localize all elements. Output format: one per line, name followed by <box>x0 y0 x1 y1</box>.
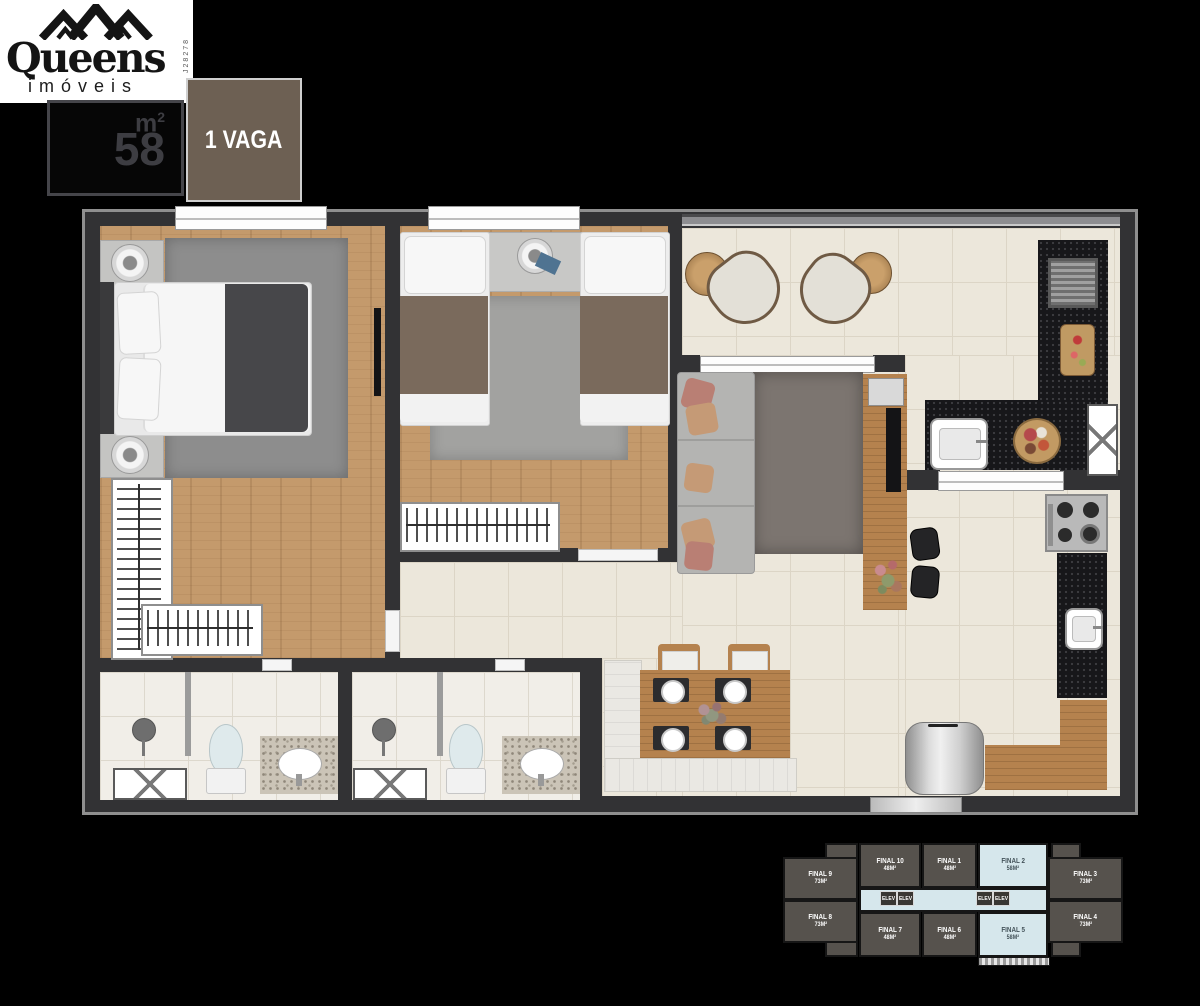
keyplan-unit: FINAL 4 73M² <box>1048 900 1123 943</box>
keyplan-unit: FINAL 7 48M² <box>859 912 921 957</box>
keyplan-unit: FINAL 9 73M² <box>783 857 858 900</box>
plant-icon <box>869 552 907 604</box>
toilet-tank <box>446 768 486 794</box>
pillow <box>584 236 666 294</box>
bed-headboard <box>100 282 114 434</box>
wall <box>338 672 352 800</box>
entry-door <box>870 797 962 813</box>
shower-arm <box>382 740 385 756</box>
elevator-label: ELEV <box>976 891 993 906</box>
elevator-label: ELEV <box>993 891 1010 906</box>
burner-icon <box>1058 528 1072 542</box>
building-outline <box>1051 941 1081 957</box>
unit-label: FINAL 7 <box>878 927 902 935</box>
vanity-counter <box>502 736 580 794</box>
master-window <box>175 206 327 230</box>
faucet-icon <box>538 774 544 786</box>
unit-label: FINAL 4 <box>1074 914 1098 922</box>
bed-sheet <box>580 394 668 422</box>
plate-icon <box>723 728 747 752</box>
unit-label: FINAL 10 <box>876 858 903 866</box>
parking-label: 1 VAGA <box>205 126 283 155</box>
pillow <box>116 357 161 421</box>
brand-subtitle: imóveis <box>28 76 138 97</box>
unit-label: FINAL 8 <box>809 914 833 922</box>
unit-area: 73M² <box>1079 922 1091 929</box>
floor-plan <box>82 209 1138 815</box>
bed-blanket <box>580 296 668 394</box>
toilet-icon <box>209 724 243 774</box>
centerpiece-icon <box>692 700 732 728</box>
balcony-railing <box>682 214 1120 226</box>
balcony-sliding-door <box>700 356 875 373</box>
floorplan-brochure: Queens imóveis J28278 m2 58 1 VAGA <box>0 0 1200 1006</box>
stove <box>1045 494 1108 552</box>
lamp-icon <box>111 244 149 282</box>
plate-icon <box>661 728 685 752</box>
bedroom2-window <box>428 206 580 230</box>
toilet-tank <box>206 768 246 794</box>
wall <box>905 470 940 490</box>
bed-sheet <box>400 394 488 422</box>
sofa-pillow <box>683 462 715 494</box>
stove-knobs <box>1048 504 1053 546</box>
kitchen-cabinet <box>985 745 1060 790</box>
shower-head-icon <box>132 718 156 742</box>
balcony-sink <box>930 418 988 470</box>
shower-tray <box>113 768 187 800</box>
shower-partition <box>185 672 191 756</box>
bed-throw <box>225 284 308 432</box>
shower-tray <box>353 768 427 800</box>
stool <box>910 565 941 599</box>
elevator-label: ELEV <box>897 891 914 906</box>
unit-area: 73M² <box>1079 879 1091 886</box>
area-badge: m2 58 <box>47 100 184 196</box>
duct-shaft <box>1087 404 1118 476</box>
parking-badge: 1 VAGA <box>186 78 302 202</box>
unit-label: FINAL 3 <box>1074 871 1098 879</box>
pillow <box>116 291 161 355</box>
grill-icon <box>1048 258 1098 308</box>
master-closet-leg <box>141 604 263 656</box>
sofa-seam <box>678 505 754 507</box>
shower-head-icon <box>372 718 396 742</box>
building-outline <box>825 941 858 957</box>
wall <box>580 658 602 800</box>
unit-label: FINAL 2 <box>1001 858 1025 866</box>
keyplan-unit: FINAL 3 73M² <box>1048 857 1123 900</box>
keyplan-unit: FINAL 1 48M² <box>922 843 977 888</box>
kitchen-pass-window <box>938 471 1064 491</box>
unit-area: 58M² <box>1007 866 1019 873</box>
sink-basin <box>1072 616 1096 642</box>
sofa-pillow <box>685 402 720 437</box>
burner-icon <box>1083 502 1099 518</box>
shower-partition <box>437 672 443 756</box>
toilet-icon <box>449 724 483 774</box>
bathroom2-door <box>495 659 525 671</box>
pillow <box>404 236 486 294</box>
bathroom1-door <box>262 659 292 671</box>
wall <box>385 212 400 658</box>
brand-registration: J28278 <box>183 38 190 73</box>
bedroom2-wardrobe <box>400 502 560 552</box>
unit-area: 48M² <box>943 935 955 942</box>
kitchen-cabinet <box>1060 700 1107 790</box>
plate-icon <box>661 680 685 704</box>
bedroom2-door <box>578 549 658 561</box>
faucet-icon <box>976 440 988 443</box>
area-value: 58 <box>50 126 165 172</box>
closet-rod <box>138 484 140 650</box>
kitchen-sink <box>1065 608 1103 650</box>
stool <box>909 526 941 562</box>
unit-area: 73M² <box>814 879 826 886</box>
unit-area: 48M² <box>884 866 896 873</box>
dining-bench <box>604 758 797 792</box>
unit-area: 58M² <box>1007 935 1019 942</box>
faucet-icon <box>296 774 302 786</box>
sink-basin <box>939 428 981 460</box>
food-platter <box>1013 418 1061 464</box>
unit-area: 48M² <box>884 935 896 942</box>
unit-area: 73M² <box>814 922 826 929</box>
brand-name: Queens <box>6 34 186 82</box>
master-door <box>385 610 400 652</box>
sofa-pillow <box>684 541 715 572</box>
cutting-board <box>1060 324 1095 376</box>
keyplan-unit: FINAL 6 48M² <box>922 912 977 957</box>
closet-rod <box>147 627 253 629</box>
vanity-counter <box>260 736 338 794</box>
refrigerator <box>905 722 984 795</box>
decor-tray <box>868 378 904 406</box>
keyplan-unit-highlighted: FINAL 2 58M² <box>978 843 1048 888</box>
tv-icon <box>886 408 901 492</box>
unit-label: FINAL 1 <box>938 858 962 866</box>
tv-icon <box>374 308 381 396</box>
wall <box>682 355 700 372</box>
keyplan-unit-highlighted: FINAL 5 58M² <box>978 912 1048 957</box>
logo: Queens imóveis J28278 <box>0 0 193 103</box>
closet-rod <box>406 524 550 526</box>
bed-blanket <box>400 296 488 394</box>
keyplan-unit: FINAL 8 73M² <box>783 900 858 943</box>
elevator-label: ELEV <box>880 891 897 906</box>
sofa-seam <box>678 439 754 441</box>
building-key-plan: FINAL 9 73M² FINAL 10 48M² FINAL 1 48M² … <box>780 838 1132 980</box>
hall-floor <box>400 562 682 658</box>
keyplan-unit: FINAL 10 48M² <box>859 843 921 888</box>
living-rug <box>753 372 863 554</box>
keyplan-balcony-strip <box>978 957 1050 966</box>
unit-label: FINAL 6 <box>938 927 962 935</box>
unit-label: FINAL 9 <box>809 871 833 879</box>
fridge-handle <box>928 724 958 727</box>
burner-icon <box>1057 502 1073 518</box>
dining-table <box>640 670 790 758</box>
lamp-icon <box>111 436 149 474</box>
shower-arm <box>142 740 145 756</box>
faucet-icon <box>1093 626 1103 629</box>
unit-area: 48M² <box>943 866 955 873</box>
dining-bench <box>604 660 642 760</box>
burner-icon <box>1080 524 1100 544</box>
unit-label: FINAL 5 <box>1001 927 1025 935</box>
wall <box>873 355 905 372</box>
